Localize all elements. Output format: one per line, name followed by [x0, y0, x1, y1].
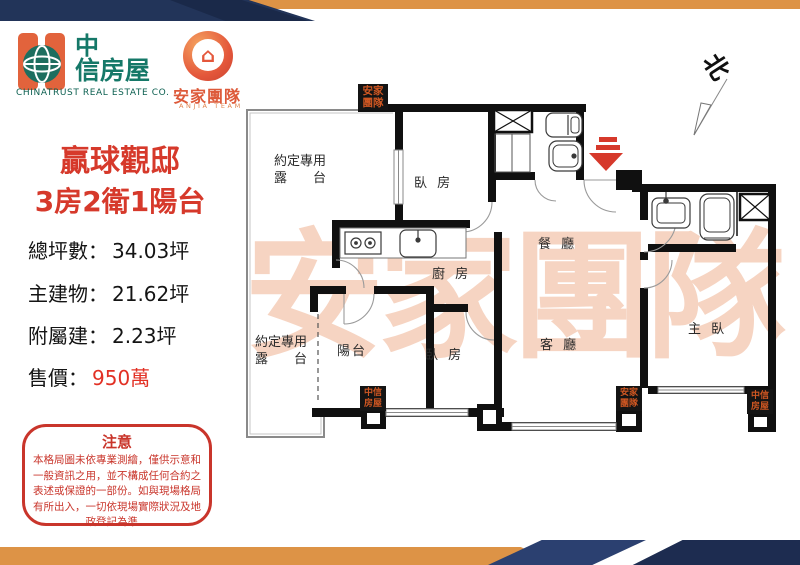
bath1-wardrobe [495, 134, 530, 172]
room-label-master: 主 臥 [688, 318, 727, 337]
door-arcs [336, 180, 676, 340]
brand-stamp-chinatrust-bottom-left: 中信房屋 [360, 386, 386, 411]
compass-icon [694, 79, 727, 135]
room-label-terrace-top: 約定專用露 台 [274, 153, 326, 187]
bathtub-icon [700, 194, 734, 240]
bath2-sink-icon [652, 192, 690, 228]
entrance-arrow-icon [589, 137, 623, 171]
stove-icon [345, 232, 381, 254]
room-label-terrace-bottom: 約定專用露 台 [255, 334, 307, 368]
room-label-balcony: 陽台 [337, 340, 367, 359]
room-label-living: 客 廳 [540, 334, 579, 353]
bath1-sink-icon [549, 141, 582, 171]
brand-stamp-anjia-bottom: 安家團隊 [616, 386, 642, 411]
room-label-bedroom1: 臥 房 [414, 172, 453, 191]
bath2-shaft-xbox [740, 194, 770, 220]
floorplan-graphics [0, 0, 800, 565]
bath1-shaft-xbox [494, 110, 532, 132]
brand-stamp-chinatrust-bottom-right: 中信房屋 [747, 389, 773, 414]
room-label-bedroom2: 臥 房 [425, 344, 464, 363]
room-label-dining: 餐 廳 [538, 233, 577, 252]
kitchen-sink-icon [400, 230, 436, 257]
walls [310, 104, 776, 432]
toilet-icon [546, 113, 582, 137]
brand-stamp-anjia-top: 安家團隊 [358, 84, 388, 110]
room-label-kitchen: 廚 房 [432, 263, 471, 282]
